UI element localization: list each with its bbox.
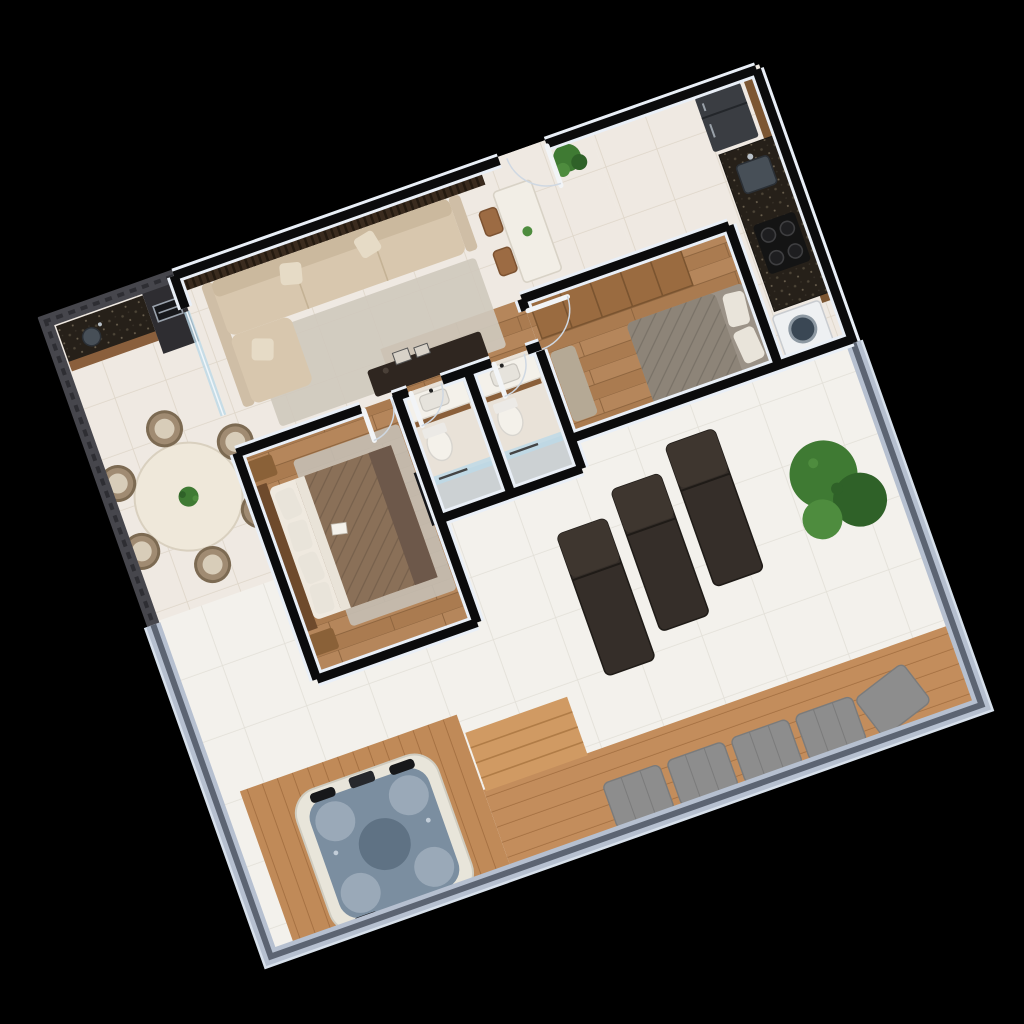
floor-plan-svg [0, 0, 1024, 1024]
book [331, 522, 347, 535]
throw-pillow [279, 262, 303, 286]
floor-plan-render [0, 0, 1024, 1024]
throw-pillow [252, 338, 274, 360]
